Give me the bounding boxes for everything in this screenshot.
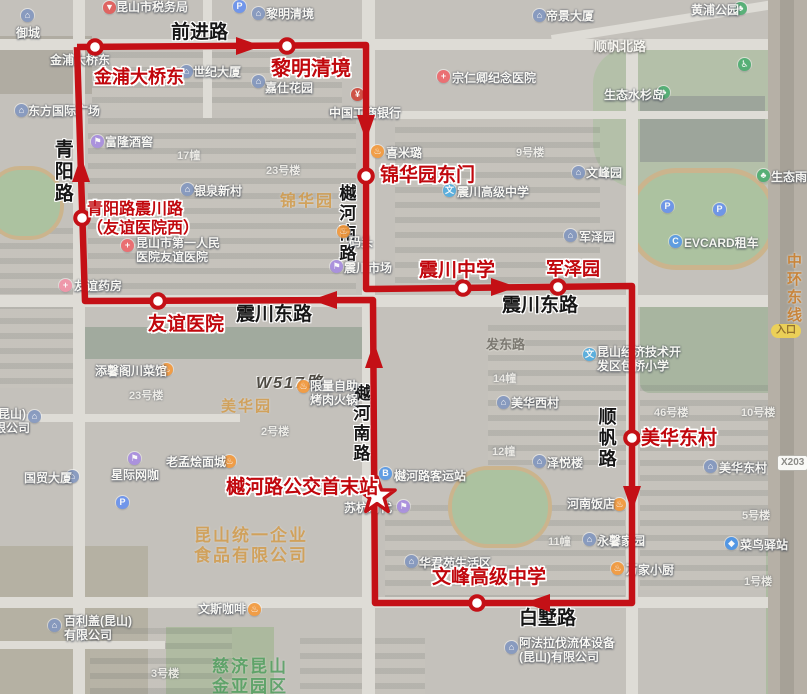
- terminal-station-label: 樾河路公交首末站: [226, 477, 378, 499]
- map-canvas[interactable]: 前进路青阳路樾河南路樾河南路震川东路震川东路顺帆路白墅路顺帆北路发东路W517路…: [0, 0, 807, 694]
- bus-stop-label: 黎明清境: [271, 58, 351, 82]
- bus-stop-label: 金浦大桥东: [94, 67, 184, 88]
- bus-stop-label: 友谊医院: [148, 314, 224, 336]
- bus-stop-label: 震川中学: [419, 260, 495, 282]
- bus-stop-label: 美华东村: [641, 428, 717, 450]
- route-labels-layer: 金浦大桥东黎明清境锦华园东门震川中学军泽园美华东村文峰高级中学友谊医院青阳路震川…: [0, 0, 807, 694]
- bus-stop-label: 文峰高级中学: [432, 567, 546, 589]
- bus-stop-label: 锦华园东门: [380, 165, 475, 187]
- bus-stop-label: 青阳路震川路（友谊医院西）: [87, 201, 199, 239]
- bus-stop-label: 军泽园: [546, 259, 600, 280]
